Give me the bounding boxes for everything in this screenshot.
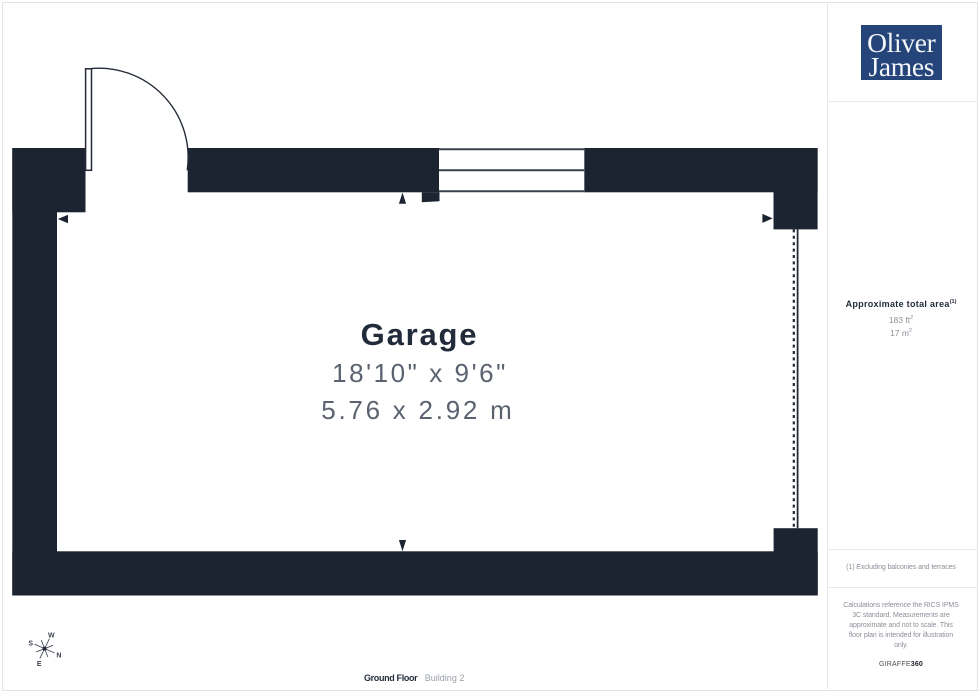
svg-text:E: E [37, 661, 42, 668]
svg-text:W: W [48, 632, 55, 639]
svg-text:S: S [28, 641, 33, 648]
svg-text:N: N [56, 652, 61, 659]
